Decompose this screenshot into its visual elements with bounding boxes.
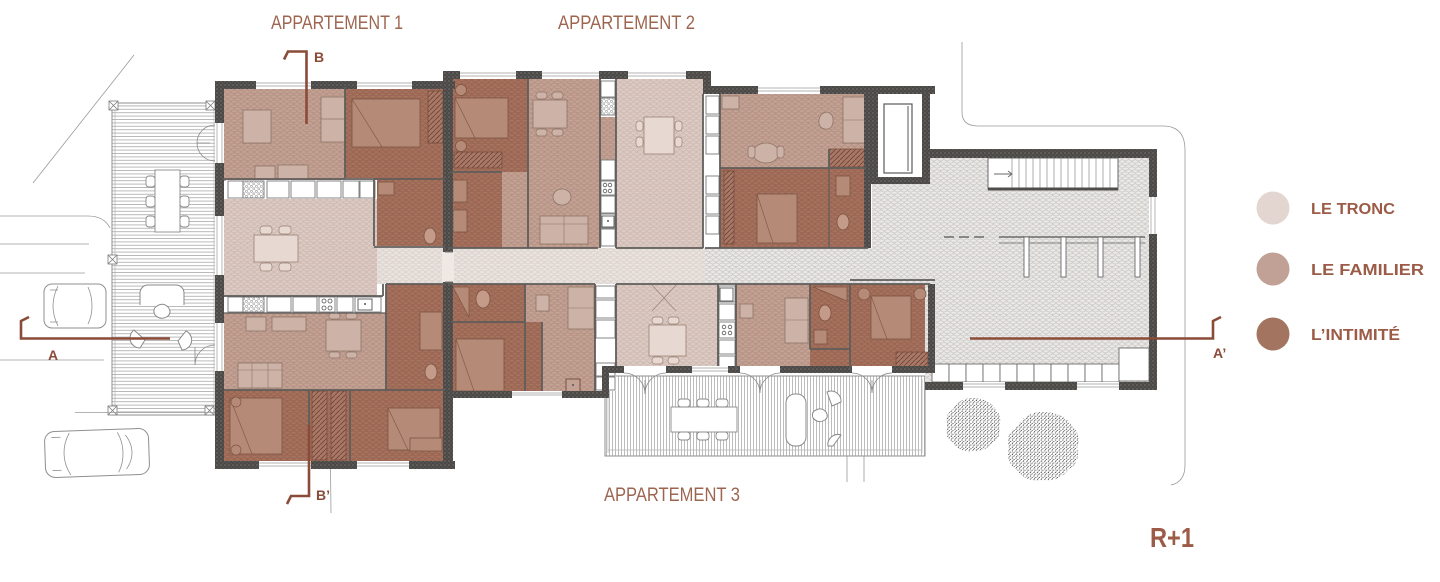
svg-text:L’INTIMITÉ: L’INTIMITÉ — [1311, 325, 1400, 344]
svg-text:A: A — [48, 347, 58, 363]
svg-text:APPARTEMENT 2: APPARTEMENT 2 — [558, 13, 695, 34]
svg-text:APPARTEMENT 3: APPARTEMENT 3 — [604, 485, 740, 506]
svg-text:A’: A’ — [1213, 345, 1226, 361]
svg-text:APPARTEMENT 1: APPARTEMENT 1 — [271, 13, 403, 34]
svg-text:LE TRONC: LE TRONC — [1311, 201, 1395, 218]
svg-text:B: B — [314, 49, 324, 65]
svg-text:LE FAMILIER: LE FAMILIER — [1311, 262, 1424, 279]
svg-text:R+1: R+1 — [1150, 522, 1194, 553]
svg-text:B’: B’ — [316, 487, 330, 503]
